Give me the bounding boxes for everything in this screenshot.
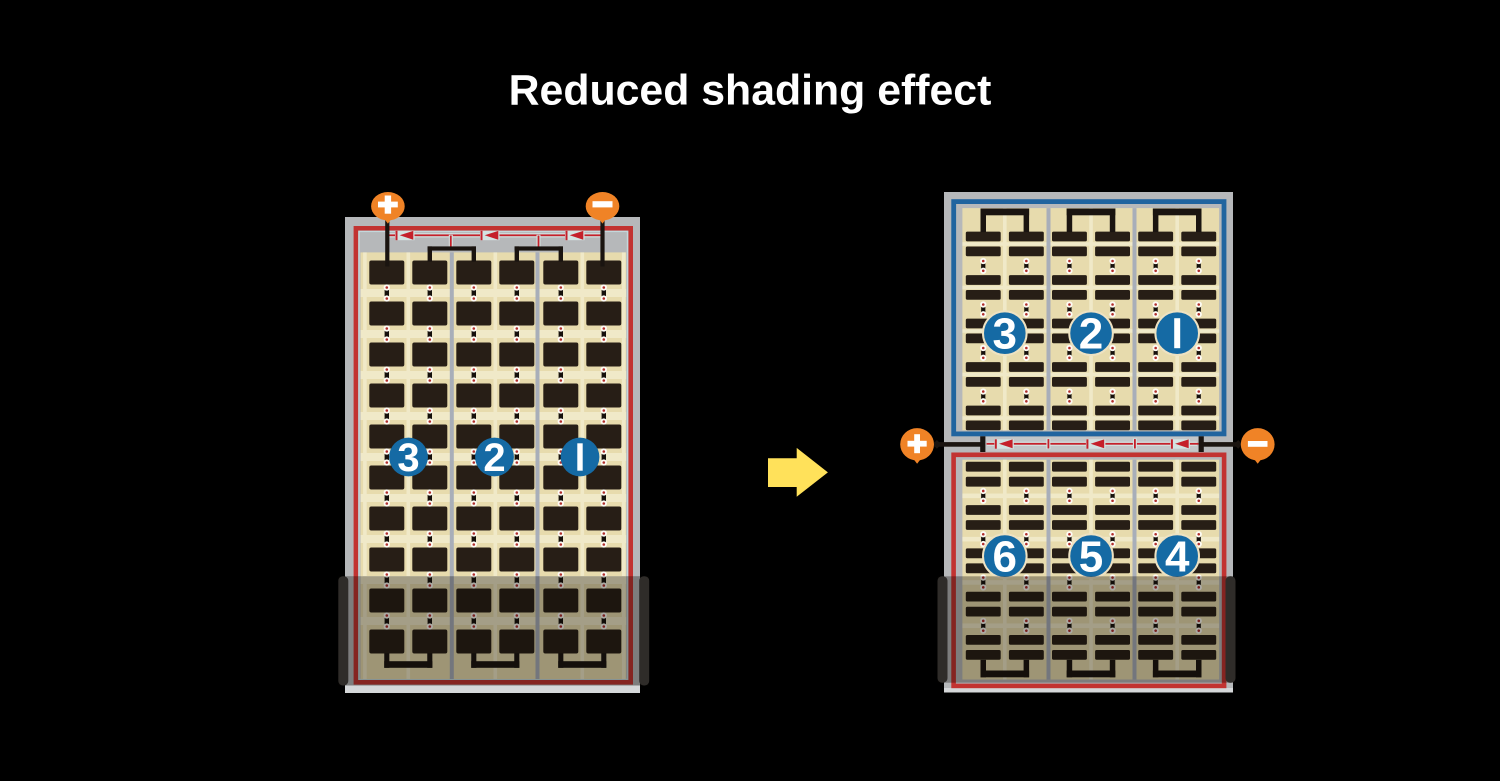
svg-text:3: 3: [993, 310, 1017, 359]
svg-text:5: 5: [1079, 533, 1103, 582]
svg-text:6: 6: [993, 533, 1017, 582]
svg-text:3: 3: [397, 436, 419, 480]
svg-text:Reduced shading effect: Reduced shading effect: [509, 67, 992, 115]
svg-text:2: 2: [1079, 310, 1103, 359]
svg-text:4: 4: [1165, 533, 1190, 582]
svg-text:2: 2: [483, 436, 505, 480]
